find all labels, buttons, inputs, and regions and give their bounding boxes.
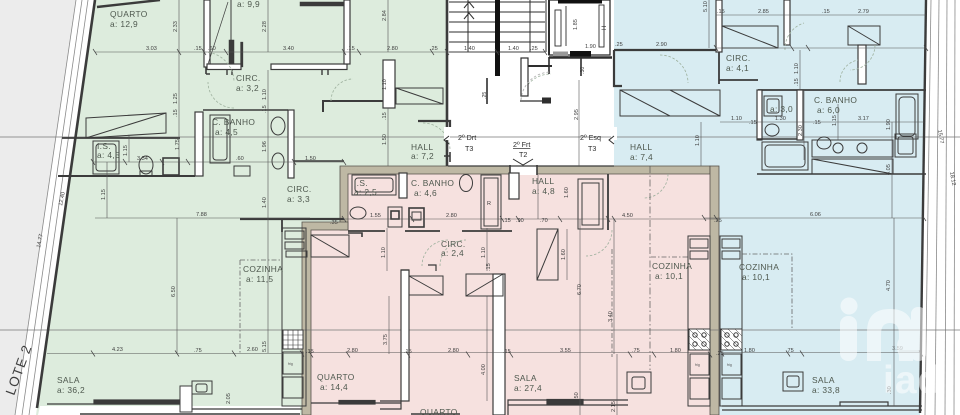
svg-text:a: 33,8: a: 33,8: [812, 385, 840, 395]
svg-text:frig: frig: [727, 363, 732, 367]
svg-text:.75: .75: [194, 348, 202, 354]
svg-text:frig: frig: [288, 362, 293, 366]
svg-text:3.75: 3.75: [383, 334, 389, 345]
svg-text:1.10: 1.10: [262, 89, 268, 100]
svg-text:R: R: [487, 201, 491, 207]
svg-text:1.50: 1.50: [382, 134, 388, 145]
svg-text:.15: .15: [173, 109, 179, 117]
svg-text:1.40: 1.40: [262, 197, 268, 208]
svg-text:4.05: 4.05: [886, 164, 892, 175]
svg-text:1.10: 1.10: [794, 63, 800, 74]
svg-text:2.90: 2.90: [656, 42, 667, 48]
svg-text:.25: .25: [530, 46, 538, 52]
svg-text:COZINHA: COZINHA: [243, 264, 283, 274]
svg-text:CIRC.: CIRC.: [287, 184, 312, 194]
svg-text:1.30: 1.30: [775, 116, 786, 122]
svg-text:3.40: 3.40: [283, 46, 294, 52]
svg-text:.25: .25: [482, 92, 488, 99]
svg-text:a: 11,5: a: 11,5: [246, 274, 273, 284]
svg-text:a: 2,4: a: 2,4: [441, 248, 464, 258]
svg-text:.15: .15: [382, 112, 388, 120]
svg-text:5.10: 5.10: [703, 1, 709, 12]
svg-text:.15: .15: [194, 46, 202, 52]
svg-text:.15: .15: [822, 9, 830, 15]
svg-text:4.50: 4.50: [622, 213, 633, 219]
svg-text:.15: .15: [503, 218, 511, 224]
svg-text:a: 12,9: a: 12,9: [110, 19, 138, 29]
svg-text:1.90: 1.90: [585, 44, 596, 50]
svg-text:3.34: 3.34: [137, 156, 148, 162]
svg-text:1.75: 1.75: [175, 139, 181, 150]
svg-text:.25: .25: [714, 218, 722, 224]
svg-text:1.80: 1.80: [670, 348, 681, 354]
svg-text:.75: .75: [786, 348, 794, 354]
svg-text:a: 36,2: a: 36,2: [57, 385, 85, 395]
svg-text:C. BANHO: C. BANHO: [814, 95, 857, 105]
svg-text:2.80: 2.80: [347, 348, 358, 354]
svg-text:C. BANHO: C. BANHO: [212, 117, 255, 127]
svg-text:a: 4,6: a: 4,6: [414, 188, 437, 198]
svg-text:.70: .70: [540, 218, 548, 224]
svg-text:1.25: 1.25: [173, 93, 179, 104]
svg-text:2.05: 2.05: [226, 393, 232, 404]
svg-text:C. BANHO: C. BANHO: [411, 178, 454, 188]
svg-text:2.80: 2.80: [446, 213, 457, 219]
svg-text:2.28: 2.28: [262, 21, 268, 32]
svg-text:.35: .35: [306, 349, 314, 355]
svg-text:6.50: 6.50: [171, 286, 177, 297]
svg-text:1.96: 1.96: [262, 141, 268, 152]
svg-text:a: 27,4: a: 27,4: [514, 383, 542, 393]
svg-text:2.33: 2.33: [173, 21, 179, 32]
svg-text:4.00: 4.00: [481, 364, 487, 375]
svg-text:1.40: 1.40: [464, 46, 475, 52]
svg-text:a: 10,1: a: 10,1: [742, 272, 770, 282]
svg-text:a: 4,5: a: 4,5: [97, 150, 120, 160]
svg-text:.25: .25: [716, 351, 724, 357]
svg-text:1.10: 1.10: [382, 79, 388, 90]
svg-text:1.85: 1.85: [573, 19, 579, 30]
svg-text:frig: frig: [695, 363, 700, 367]
svg-text:1.40: 1.40: [508, 46, 519, 52]
svg-text:1.15: 1.15: [101, 189, 107, 200]
svg-text:HALL: HALL: [630, 142, 652, 152]
svg-text:.35: .35: [330, 220, 338, 226]
svg-text:3.03: 3.03: [146, 46, 157, 52]
svg-text:QUARTO: QUARTO: [110, 9, 148, 19]
svg-text:a: 10,1: a: 10,1: [655, 271, 683, 281]
svg-text:.15: .15: [503, 349, 511, 355]
svg-text:4.23: 4.23: [112, 347, 123, 353]
svg-text:1.60: 1.60: [561, 249, 567, 260]
svg-text:1.10: 1.10: [381, 247, 387, 258]
svg-text:a: 4,1: a: 4,1: [726, 63, 749, 73]
svg-text:6.70: 6.70: [577, 284, 583, 295]
svg-text:T2: T2: [519, 150, 527, 159]
svg-text:2º Esq: 2º Esq: [580, 133, 601, 142]
svg-text:3.40: 3.40: [608, 311, 614, 322]
svg-text:1.10: 1.10: [695, 135, 701, 146]
svg-text:3.55: 3.55: [560, 348, 571, 354]
svg-text:a: 3,0: a: 3,0: [770, 104, 793, 114]
svg-text:a: 14,4: a: 14,4: [320, 382, 348, 392]
svg-text:2.15: 2.15: [611, 401, 617, 412]
svg-text:.60: .60: [236, 156, 244, 162]
svg-text:5.15: 5.15: [262, 341, 268, 352]
svg-text:a: 7,4: a: 7,4: [630, 152, 653, 162]
svg-text:iad: iad: [883, 359, 942, 402]
svg-text:2.30: 2.30: [798, 125, 804, 136]
svg-text:a: 2,5: a: 2,5: [354, 187, 377, 197]
svg-text:SALA: SALA: [812, 375, 835, 385]
svg-text:a: 4,5: a: 4,5: [215, 127, 238, 137]
svg-text:2º Frt: 2º Frt: [513, 140, 530, 149]
svg-text:.30: .30: [580, 67, 586, 74]
svg-text:1.10: 1.10: [731, 116, 742, 122]
svg-text:.60: .60: [208, 46, 216, 52]
svg-text:1.90: 1.90: [886, 119, 892, 130]
svg-text:.15: .15: [486, 263, 492, 271]
svg-text:4.70: 4.70: [886, 280, 892, 291]
svg-text:a: 9,9: a: 9,9: [237, 0, 260, 9]
svg-text:.25: .25: [430, 46, 438, 52]
svg-text:.15: .15: [347, 46, 355, 52]
svg-text:2º Drt: 2º Drt: [458, 133, 476, 142]
svg-text:2.79: 2.79: [858, 9, 869, 15]
svg-text:SALA: SALA: [514, 373, 537, 383]
svg-text:COZINHA: COZINHA: [739, 262, 779, 272]
svg-text:QUARTO: QUARTO: [317, 372, 355, 382]
svg-text:QUARTO: QUARTO: [420, 407, 458, 415]
svg-text:.15: .15: [404, 349, 412, 355]
svg-text:.75: .75: [632, 348, 640, 354]
svg-text:SALA: SALA: [57, 375, 80, 385]
svg-text:2.84: 2.84: [382, 10, 388, 21]
svg-text:a: 3,3: a: 3,3: [287, 194, 310, 204]
svg-text:.15: .15: [813, 120, 821, 126]
svg-text:1.15: 1.15: [832, 115, 838, 126]
svg-text:7.88: 7.88: [196, 212, 207, 218]
svg-text:3.17: 3.17: [858, 116, 869, 122]
svg-text:2.80: 2.80: [448, 348, 459, 354]
svg-text:2.60: 2.60: [247, 347, 258, 353]
svg-text:1.80: 1.80: [744, 348, 755, 354]
svg-text:.15: .15: [262, 105, 268, 113]
svg-text:a: 6,0: a: 6,0: [817, 105, 840, 115]
svg-text:6.06: 6.06: [810, 212, 821, 218]
svg-text:.15: .15: [749, 120, 757, 126]
svg-text:.15: .15: [794, 78, 800, 86]
svg-text:H: H: [602, 26, 608, 30]
svg-text:1.50: 1.50: [305, 156, 316, 162]
svg-text:2.80: 2.80: [387, 46, 398, 52]
svg-text:1.55: 1.55: [370, 213, 381, 219]
svg-text:T3: T3: [465, 144, 473, 153]
svg-text:.25: .25: [615, 42, 623, 48]
svg-text:2.95: 2.95: [574, 109, 580, 120]
svg-text:a: 3,2: a: 3,2: [236, 83, 259, 93]
svg-text:1.15: 1.15: [123, 145, 129, 156]
svg-text:.90: .90: [516, 218, 524, 224]
svg-text:a: 7,2: a: 7,2: [411, 151, 434, 161]
svg-text:HALL: HALL: [532, 176, 554, 186]
svg-text:CIRC.: CIRC.: [726, 53, 751, 63]
svg-text:.15: .15: [717, 9, 725, 15]
svg-text:.50: .50: [574, 392, 580, 400]
svg-text:COZINHA: COZINHA: [652, 261, 692, 271]
svg-text:a: 4,8: a: 4,8: [532, 186, 555, 196]
svg-text:1.10: 1.10: [481, 247, 487, 258]
svg-text:1.60: 1.60: [564, 187, 570, 198]
svg-text:2.85: 2.85: [758, 9, 769, 15]
svg-text:CIRC.: CIRC.: [236, 73, 261, 83]
svg-text:T3: T3: [588, 144, 596, 153]
